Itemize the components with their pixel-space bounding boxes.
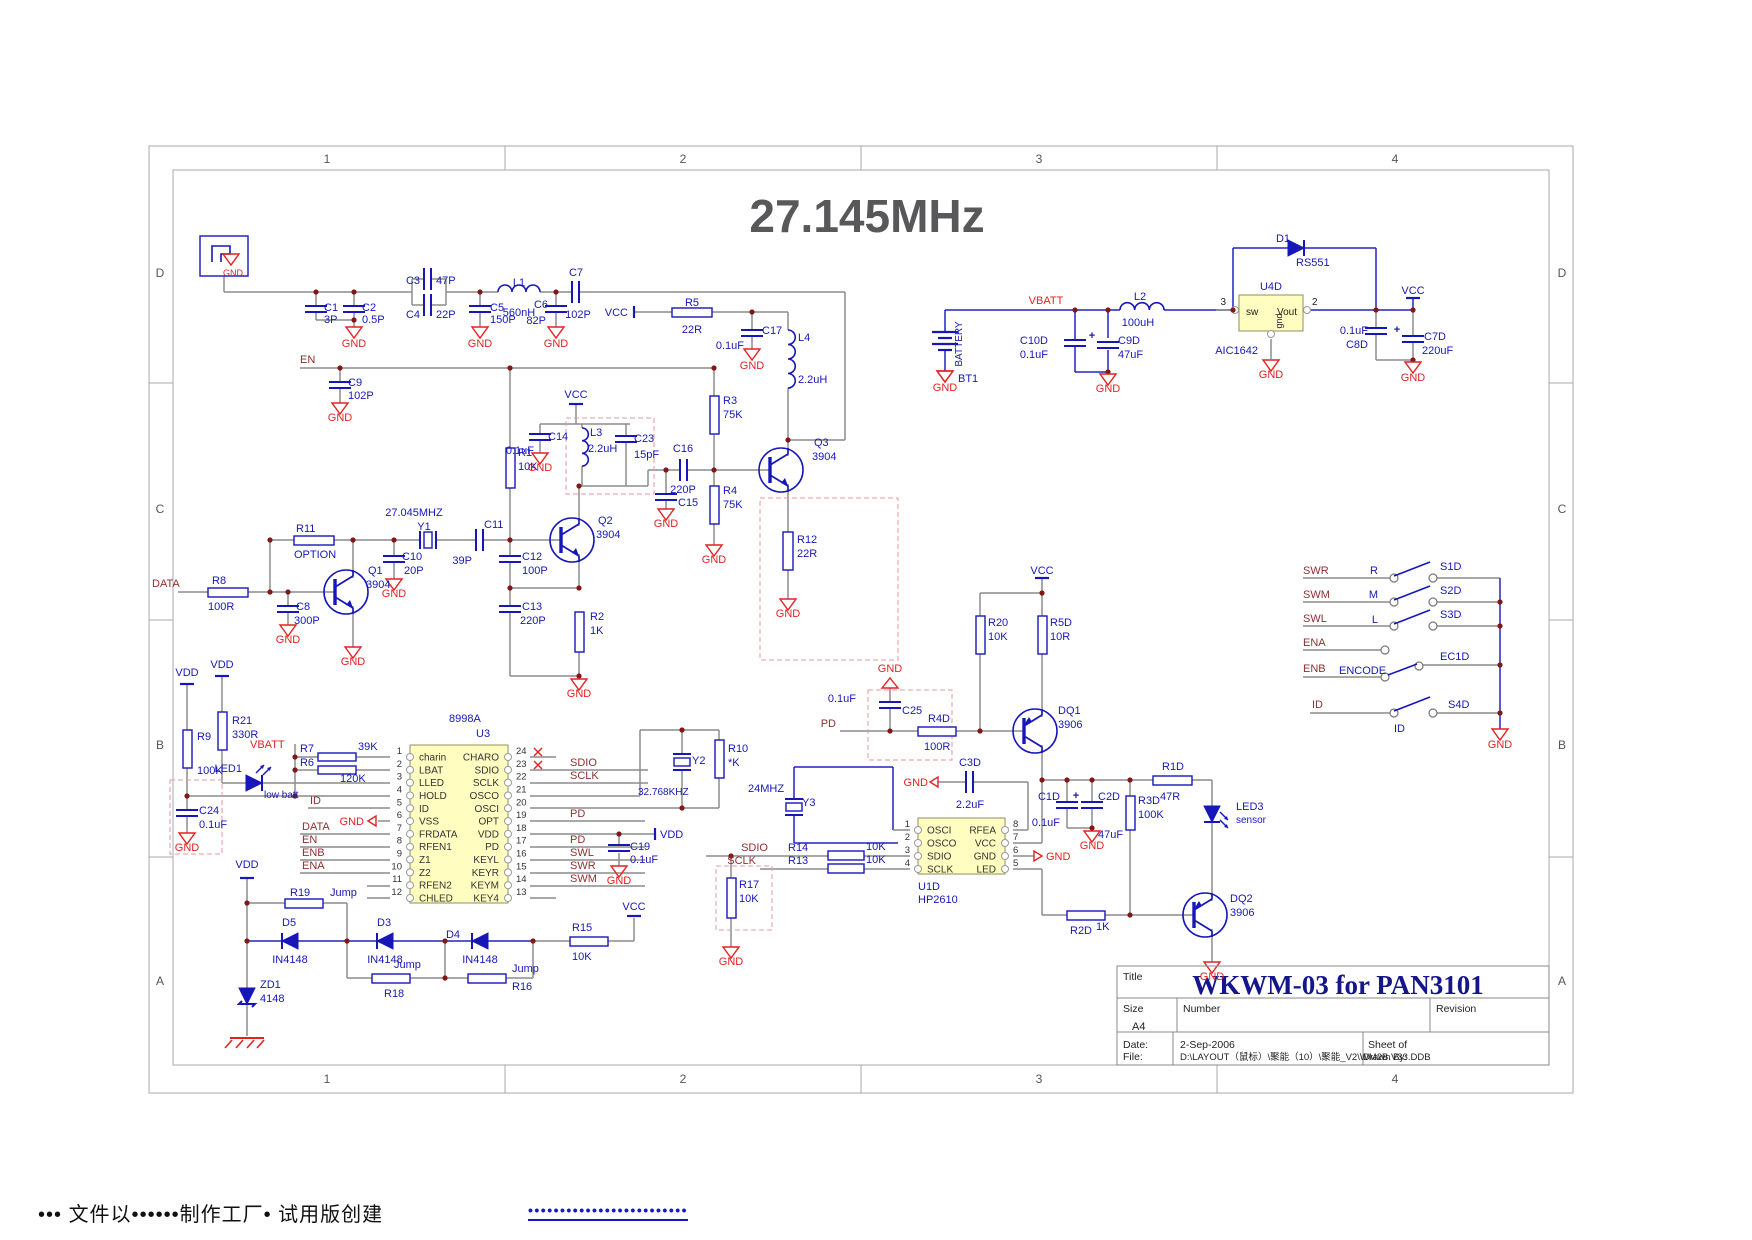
ic-pin-U3-22 — [505, 779, 512, 786]
junction-dot — [530, 938, 535, 943]
label-102p: 102P — [348, 390, 374, 402]
label-r4d: R4D — [928, 713, 950, 725]
label-swl: SWL — [570, 847, 594, 859]
frame-col-label: 2 — [680, 152, 687, 166]
label-3906: 3906 — [1230, 907, 1254, 919]
label-swr: SWR — [570, 860, 596, 872]
label-gnd: GND — [740, 360, 765, 372]
label-c13: C13 — [522, 601, 542, 613]
frame-row-label: B — [1558, 738, 1566, 752]
ic-pinnum-6: 6 — [1013, 845, 1018, 856]
switch-blade — [1394, 610, 1430, 624]
label-0-1uf: 0.1uF — [1020, 349, 1048, 361]
junction-dot — [292, 767, 297, 772]
junction-dot — [576, 585, 581, 590]
label-22r: 22R — [797, 548, 817, 560]
resistor-R2D — [1067, 911, 1105, 920]
label-10k: 10K — [866, 854, 886, 866]
junction-dot — [1373, 307, 1378, 312]
label-dq1: DQ1 — [1058, 705, 1081, 717]
label-c15: C15 — [678, 497, 698, 509]
earth-gnd-icon — [247, 1040, 254, 1048]
ic-pinname-RFEA: RFEA — [969, 826, 996, 837]
label-pd: PD — [821, 718, 836, 730]
frame-row-label: D — [1558, 266, 1567, 280]
resistor-R4D — [918, 727, 956, 736]
ic-pinnum-12: 12 — [391, 887, 402, 898]
label-vbatt: VBATT — [1029, 295, 1064, 307]
ic-pin-U3-11 — [407, 882, 414, 889]
ic-pinname-OSCI: OSCI — [927, 826, 951, 837]
ic-pinnum-8: 8 — [1013, 819, 1018, 830]
label-1k: 1K — [590, 625, 604, 637]
label-id: ID — [1312, 699, 1323, 711]
switch-contact[interactable] — [1429, 622, 1437, 630]
crystal-Y3 — [786, 803, 802, 811]
junction-dot — [679, 805, 684, 810]
ic-pinname-charin: charin — [419, 753, 446, 764]
label-d3: D3 — [377, 917, 391, 929]
gnd-arrow-icon — [548, 327, 564, 338]
label-vcc: VCC — [564, 389, 587, 401]
label-39p: 39P — [452, 555, 472, 567]
label-data: DATA — [302, 821, 330, 833]
label-0-1uf: 0.1uF — [1340, 325, 1368, 337]
junction-dot — [267, 589, 272, 594]
titleblock-sheet-label: Sheet of — [1368, 1039, 1407, 1051]
label-d1: D1 — [1276, 233, 1290, 245]
label-22p: 22P — [436, 309, 456, 321]
ic-pin-U3-8 — [407, 843, 414, 850]
ic-pinname-SDIO: SDIO — [475, 765, 500, 776]
label-24mhz: 24MHZ — [748, 783, 784, 795]
label-u1d: U1D — [918, 881, 940, 893]
label-y1: Y1 — [417, 521, 430, 533]
ic-pin-U1D-8 — [1002, 827, 1009, 834]
label-jump: Jump — [394, 959, 421, 971]
label-c10: C10 — [402, 551, 422, 563]
resistor-R19 — [285, 899, 323, 908]
label-2-2uh: 2.2uH — [588, 443, 617, 455]
ic-pin-U3-12 — [407, 895, 414, 902]
label-c6: C6 — [534, 299, 548, 311]
earth-gnd-icon — [225, 1040, 232, 1048]
junction-dot — [1497, 599, 1502, 604]
junction-dot — [679, 727, 684, 732]
label-2-2uh: 2.2uH — [798, 374, 827, 386]
label-vbatt: VBATT — [250, 739, 285, 751]
label-ena: ENA — [1303, 637, 1326, 649]
label-y2: Y2 — [692, 755, 705, 767]
label-s1d: S1D — [1440, 561, 1461, 573]
label-gnd: GND — [341, 656, 366, 668]
earth-gnd-icon — [236, 1040, 243, 1048]
label-gnd: GND — [654, 518, 679, 530]
label-120k: 120K — [340, 773, 366, 785]
ic-pinname-SDIO: SDIO — [927, 852, 952, 863]
ic-pin-U3-6 — [407, 818, 414, 825]
junction-dot — [576, 673, 581, 678]
label-r15: R15 — [572, 922, 592, 934]
junction-dot — [977, 728, 982, 733]
label-c25: C25 — [902, 705, 922, 717]
ic-pinname-HOLD: HOLD — [419, 791, 447, 802]
label-gnd: GND — [276, 634, 301, 646]
label-10k: 10K — [518, 461, 538, 473]
label-data: DATA — [152, 578, 180, 590]
label-27-045mhz: 27.045MHZ — [385, 507, 443, 519]
resistor-R14 — [828, 851, 864, 860]
ic-pinname-SCLK: SCLK — [473, 778, 499, 789]
switch-contact[interactable] — [1415, 662, 1423, 670]
ic-pin-U3-9 — [407, 856, 414, 863]
ic-pinnum-14: 14 — [516, 874, 527, 885]
capacitor-polarity-C2D: + — [1073, 790, 1079, 802]
label-r1: R1 — [518, 447, 532, 459]
label-l: L — [1372, 614, 1378, 626]
label-sensor: sensor — [1236, 815, 1267, 826]
ic-pinname-KEY4: KEY4 — [473, 894, 499, 905]
label-47uf: 47uF — [1118, 349, 1143, 361]
ic-pinnum-21: 21 — [516, 784, 527, 795]
label-10k: 10K — [866, 841, 886, 853]
resistor-R9 — [183, 730, 192, 768]
label-c1d: C1D — [1038, 791, 1060, 803]
ic-pinnum-4: 4 — [905, 858, 910, 869]
ic-pinname-LLED: LLED — [419, 778, 444, 789]
switch-contact[interactable] — [1429, 574, 1437, 582]
label-gnd: GND — [702, 554, 727, 566]
ic-pinnum-19: 19 — [516, 810, 527, 821]
label-l3: L3 — [590, 427, 602, 439]
label-r8: R8 — [212, 575, 226, 587]
label-en: EN — [302, 834, 317, 846]
ic-pin-U3-15 — [505, 869, 512, 876]
capacitor-polarity-C9D: + — [1089, 330, 1095, 342]
label-100r: 100R — [924, 741, 950, 753]
label-r5: R5 — [685, 297, 699, 309]
junction-dot — [244, 900, 249, 905]
junction-dot — [337, 365, 342, 370]
label-gnd: GND — [933, 382, 958, 394]
label-d5: D5 — [282, 917, 296, 929]
ic-pinname-KEYR: KEYR — [472, 868, 499, 879]
label-sclk: SCLK — [570, 770, 599, 782]
label-jump: Jump — [512, 963, 539, 975]
ic-pin-U3-5 — [407, 805, 414, 812]
label-gnd: GND — [1080, 840, 1105, 852]
label-sdio: SDIO — [741, 842, 768, 854]
junction-dot — [1072, 307, 1077, 312]
ic-pin-U3-1 — [407, 754, 414, 761]
label-gnd: GND — [544, 338, 569, 350]
junction-dot — [391, 537, 396, 542]
label-4148: 4148 — [260, 993, 284, 1005]
label-c10d: C10D — [1020, 335, 1048, 347]
titleblock-title-value: WKWM-03 for PAN3101 — [1192, 970, 1483, 1000]
junction-dot — [1039, 590, 1044, 595]
junction-dot — [313, 289, 318, 294]
frame-row-label: A — [156, 974, 164, 988]
ic-pinnum-5: 5 — [397, 797, 402, 808]
ic-pinname-GND: GND — [974, 852, 996, 863]
frame-row-label: B — [156, 738, 164, 752]
junction-dot — [553, 289, 558, 294]
label-10r: 10R — [1050, 631, 1070, 643]
label-en: EN — [300, 354, 315, 366]
switch-blade — [1394, 562, 1430, 576]
switch-contact[interactable] — [1381, 646, 1389, 654]
label-0-5p: 0.5P — [362, 314, 385, 326]
titleblock-size-label: Size — [1123, 1003, 1144, 1015]
label--k: *K — [728, 757, 740, 769]
label-r1d: R1D — [1162, 761, 1184, 773]
ic-pin-U3-16 — [505, 856, 512, 863]
ic-pin-U3-21 — [505, 792, 512, 799]
ic-pin-U3-3 — [407, 779, 414, 786]
gnd-arrow-icon — [472, 327, 488, 338]
ic-pin-U1D-6 — [1002, 853, 1009, 860]
label-gnd: GND — [1046, 851, 1071, 863]
ic-pinnum-1: 1 — [397, 746, 402, 757]
ic-pinname-Z2: Z2 — [419, 868, 431, 879]
label-s2d: S2D — [1440, 585, 1461, 597]
gnd-arrow-icon — [744, 349, 760, 360]
label-s3d: S3D — [1440, 609, 1461, 621]
junction-dot — [351, 289, 356, 294]
label-m: M — [1369, 589, 1378, 601]
label-75k: 75K — [723, 409, 743, 421]
label-gnd: gnd — [1274, 313, 1284, 328]
label-r16: R16 — [512, 981, 532, 993]
label-47r: 47R — [1160, 791, 1180, 803]
label-gnd: GND — [1488, 739, 1513, 751]
diode-D4 — [472, 933, 488, 949]
label-r6: R6 — [300, 757, 314, 769]
gnd-port-icon — [1034, 851, 1042, 861]
junction-dot — [267, 537, 272, 542]
frame-col-label: 3 — [1036, 1072, 1043, 1086]
label-led3: LED3 — [1236, 801, 1264, 813]
label-swl: SWL — [1303, 613, 1327, 625]
resistor-R21 — [218, 712, 227, 750]
transistor-DQ2 — [1194, 899, 1212, 910]
resistor-R5 — [672, 308, 712, 317]
ic-pinname-Z1: Z1 — [419, 855, 431, 866]
label-id: ID — [1394, 723, 1405, 735]
diode-D3 — [377, 933, 393, 949]
label-gnd: GND — [1259, 369, 1284, 381]
label-0-1uf: 0.1uF — [716, 340, 744, 352]
junction-dot — [1105, 307, 1110, 312]
transistor-Q3 — [770, 454, 788, 465]
ic-pin-U1D-5 — [1002, 866, 1009, 873]
junction-dot — [887, 728, 892, 733]
ic-pin-U3-14 — [505, 882, 512, 889]
junction-dot — [507, 365, 512, 370]
label-enb: ENB — [1303, 663, 1326, 675]
label-zd1: ZD1 — [260, 979, 281, 991]
label-39k: 39K — [358, 741, 378, 753]
diode-D5 — [282, 933, 298, 949]
label-s4d: S4D — [1448, 699, 1469, 711]
ic-pinname-VSS: VSS — [419, 817, 439, 828]
junction-dot — [711, 467, 716, 472]
label-swm: SWM — [570, 873, 597, 885]
sheet-inner-border — [173, 170, 1549, 1065]
label-r18: R18 — [384, 988, 404, 1000]
label-vcc: VCC — [605, 307, 628, 319]
label-c8: C8 — [296, 601, 310, 613]
resistor-R5D — [1038, 616, 1047, 654]
label-r21: R21 — [232, 715, 252, 727]
ic-pinname-ID: ID — [419, 804, 429, 815]
ic-pinnum-15: 15 — [516, 861, 527, 872]
switch-contact[interactable] — [1429, 709, 1437, 717]
resistor-R13 — [828, 864, 864, 873]
label-c7: C7 — [569, 267, 583, 279]
resistor-R4 — [710, 486, 719, 524]
ic-pinnum-24: 24 — [516, 746, 527, 757]
label-47p: 47P — [436, 275, 456, 287]
label-3904: 3904 — [596, 529, 620, 541]
label-c2: C2 — [362, 302, 376, 314]
ic-pinnum-13: 13 — [516, 887, 527, 898]
label-gnd: GND — [719, 956, 744, 968]
label-gnd: GND — [1401, 372, 1426, 384]
junction-dot — [285, 589, 290, 594]
label-vcc: VCC — [1401, 285, 1424, 297]
switch-contact[interactable] — [1429, 598, 1437, 606]
label-in4148: IN4148 — [462, 954, 497, 966]
label-q1: Q1 — [368, 565, 383, 577]
schematic-page: 11223344DDCCBBAA+++charin1LBAT2LLED3HOLD… — [0, 0, 1752, 1240]
frame-row-label: C — [1558, 502, 1567, 516]
resistor-R20 — [976, 616, 985, 654]
earth-gnd-icon — [257, 1040, 264, 1048]
ic-pinname-FRDATA: FRDATA — [419, 829, 458, 840]
label-r13: R13 — [788, 855, 808, 867]
junction-dot — [711, 365, 716, 370]
titleblock-size-value: A4 — [1132, 1021, 1145, 1033]
label-100uh: 100uH — [1122, 317, 1154, 329]
footer-link[interactable]: ••••••••••••••••••••••••• — [528, 1202, 688, 1221]
ic-pin-U1D-3 — [915, 853, 922, 860]
ic-pinnum-6: 6 — [397, 810, 402, 821]
label-u3: U3 — [476, 728, 490, 740]
ic-pin-U4D — [1304, 307, 1311, 314]
frame-col-label: 4 — [1392, 152, 1399, 166]
ic-pinnum-1: 1 — [905, 819, 910, 830]
label-pd: PD — [570, 834, 585, 846]
label-3904: 3904 — [812, 451, 836, 463]
label-jump: Jump — [330, 887, 357, 899]
label-led1: LED1 — [214, 763, 242, 775]
junction-dot — [507, 537, 512, 542]
ic-pinnum-2: 2 — [905, 832, 910, 843]
label-sclk: SCLK — [727, 855, 756, 867]
ic-pinname-VCC: VCC — [975, 839, 996, 850]
label-pd: PD — [570, 808, 585, 820]
transistor-DQ1 — [1024, 736, 1042, 747]
junction-dot — [350, 537, 355, 542]
led-LED3 — [1204, 806, 1220, 822]
ic-pin-U4D — [1268, 331, 1275, 338]
ic-pinnum-18: 18 — [516, 823, 527, 834]
junction-dot — [785, 437, 790, 442]
switch-blade — [1394, 586, 1430, 600]
ic-pinname-LBAT: LBAT — [419, 765, 443, 776]
label-y3: Y3 — [802, 797, 815, 809]
label-r2d: R2D — [1070, 925, 1092, 937]
label-82p: 82P — [526, 315, 546, 327]
label-3: 3 — [1220, 297, 1226, 308]
titleblock-file-label: File: — [1123, 1051, 1143, 1063]
junction-dot — [477, 289, 482, 294]
label-3904: 3904 — [366, 579, 390, 591]
ic-pinnum-17: 17 — [516, 836, 527, 847]
ic-pinname-KEYL: KEYL — [473, 855, 499, 866]
label-100p: 100P — [522, 565, 548, 577]
label-2-2uf: 2.2uF — [956, 799, 984, 811]
ic-pinnum-16: 16 — [516, 849, 527, 860]
label-q3: Q3 — [814, 437, 829, 449]
ic-pin-U1D-2 — [915, 840, 922, 847]
label-vdd: VDD — [660, 829, 683, 841]
label-encode: ENCODE — [1339, 665, 1386, 677]
ic-pinname-OSCO: OSCO — [927, 839, 957, 850]
ic-pin-U3-18 — [505, 830, 512, 837]
crystal-Y1 — [424, 532, 432, 548]
ic-pinnum-22: 22 — [516, 772, 527, 783]
titleblock-date-label: Date: — [1123, 1039, 1148, 1051]
junction-dot — [1410, 307, 1415, 312]
gnd-arrow-icon — [223, 254, 239, 265]
label-ec1d: EC1D — [1440, 651, 1469, 663]
label-102p: 102P — [565, 309, 591, 321]
ic-pinnum-23: 23 — [516, 759, 527, 770]
label-220uf: 220uF — [1422, 345, 1453, 357]
resistor-R17 — [727, 878, 736, 918]
label-220p: 220P — [520, 615, 546, 627]
titleblock-date-value: 2-Sep-2006 — [1180, 1039, 1235, 1051]
label-r: R — [1370, 565, 1378, 577]
footer-notice: ••• 文件以••••••制作工厂• 试用版创建 — [38, 1198, 383, 1227]
ic-pinnum-2: 2 — [397, 759, 402, 770]
ic-pinnum-5: 5 — [1013, 858, 1018, 869]
transistor-DQ1 — [1024, 715, 1042, 726]
label-c3d: C3D — [959, 757, 981, 769]
junction-dot — [1089, 777, 1094, 782]
label-c3: C3 — [406, 275, 420, 287]
junction-dot — [244, 938, 249, 943]
frame-row-label: D — [156, 266, 165, 280]
label-3p: 3P — [324, 314, 337, 326]
frame-row-label: A — [1558, 974, 1566, 988]
transistor-Q2 — [561, 524, 579, 535]
label-low-batt: low batt — [264, 790, 299, 801]
label-aic1642: AIC1642 — [1215, 345, 1258, 357]
frame-col-label: 4 — [1392, 1072, 1399, 1086]
ic-pinnum-10: 10 — [391, 861, 402, 872]
label-0-1uf: 0.1uF — [199, 819, 227, 831]
junction-dot — [663, 467, 668, 472]
label-gnd: GND — [776, 608, 801, 620]
ic-pin-U3-24 — [505, 754, 512, 761]
gnd-arrow-icon — [937, 371, 953, 382]
ic-pinnum-3: 3 — [397, 772, 402, 783]
label-enb: ENB — [302, 847, 325, 859]
